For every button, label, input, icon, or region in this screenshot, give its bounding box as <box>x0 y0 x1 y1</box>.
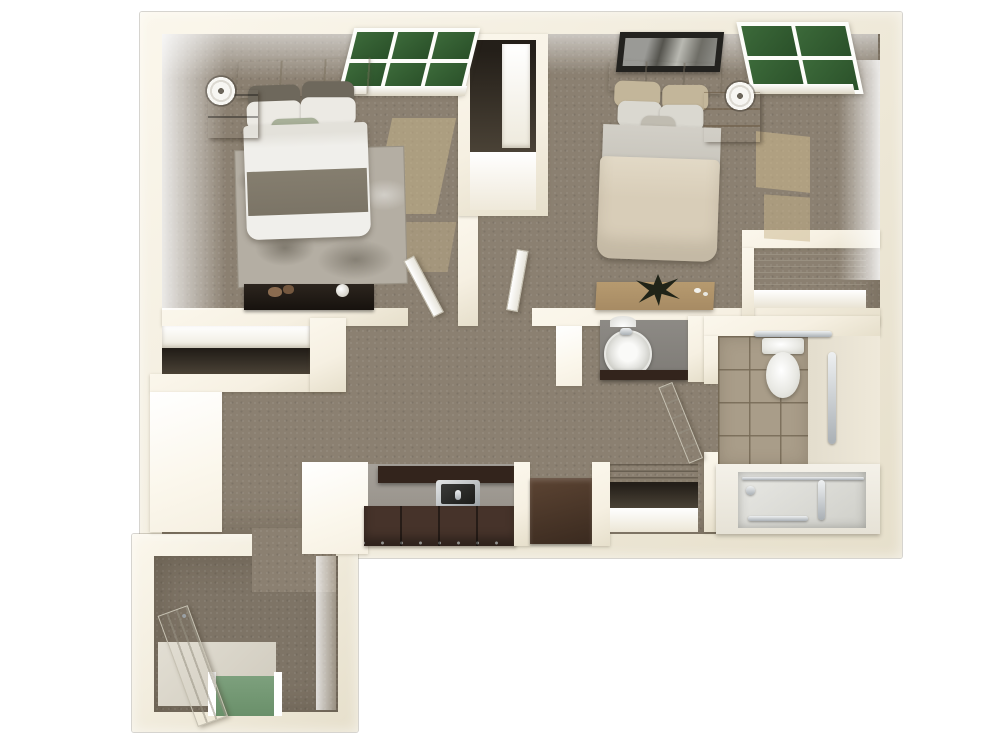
coat-closet-east-wall <box>310 318 346 392</box>
kitchen-lower-cabinets <box>364 506 516 546</box>
linen-closet-interior <box>610 482 698 508</box>
bed2-duvet <box>597 156 720 262</box>
bedroom1-table-lamp <box>204 74 238 108</box>
bedroom2-window-sill <box>745 84 855 94</box>
window-pane <box>350 32 393 59</box>
dresser-decor-sphere <box>318 286 334 302</box>
front-door-jamb <box>274 672 282 716</box>
bedroom2-sunlight-patch-2 <box>764 194 810 241</box>
bedroom2-closet-west-wall <box>742 248 754 326</box>
linen-closet-wire-shelf <box>610 464 698 482</box>
toilet-bowl <box>766 352 800 398</box>
window-pane <box>741 26 797 56</box>
window-pane <box>432 32 475 59</box>
linen-closet-floor <box>610 508 698 532</box>
desk-decor <box>694 288 701 293</box>
vanity-faucet <box>620 328 632 335</box>
window-pane <box>795 26 851 56</box>
bathroom-floor-light <box>808 336 880 466</box>
kitchen-peninsula-wall <box>302 462 368 554</box>
between-doors-wall-stub <box>458 216 478 326</box>
kitchen-faucet <box>455 490 461 500</box>
shower-door-handle <box>818 480 825 520</box>
bedroom2-table-lamp <box>722 78 758 114</box>
bedroom2-bed <box>593 60 726 262</box>
center-closet-lower <box>470 152 536 210</box>
vanity-east-wall <box>688 316 704 382</box>
tub-towel-bar <box>748 516 808 521</box>
kitchen-east-wall <box>592 462 610 546</box>
bedroom1-bed <box>237 58 375 240</box>
kitchen-sink <box>436 480 480 508</box>
grab-bar-vertical <box>828 352 836 444</box>
front-door-knob <box>182 613 187 618</box>
bedroom2-closet-front <box>754 290 866 308</box>
bathroom-tile-floor <box>718 336 808 466</box>
entry-east-wall-face <box>316 556 336 710</box>
vanity-wall-light <box>610 316 636 327</box>
hallway-west-wall <box>150 392 222 532</box>
bathroom-west-wall-upper <box>704 336 718 384</box>
center-closet-shelf <box>502 44 530 148</box>
bedroom1-south-wall <box>162 308 408 326</box>
bedroom2-sunlight-patch <box>756 131 810 193</box>
vanity-west-wall <box>556 326 582 386</box>
coat-closet-interior <box>162 348 310 374</box>
refrigerator <box>530 478 592 544</box>
bathroom-towel-bar <box>754 331 832 337</box>
shower-glass-track <box>742 477 864 480</box>
window-pane <box>391 32 434 59</box>
desk-decor <box>703 292 708 296</box>
floor-plan-stage <box>0 0 1000 750</box>
kitchen-divider-wall <box>514 462 530 546</box>
shower-head <box>746 486 755 495</box>
bed1-duvet-band <box>247 168 368 216</box>
vanity-drawer-front <box>600 370 688 380</box>
dresser-decor-sphere <box>336 284 349 297</box>
bedroom1-dresser <box>244 284 374 310</box>
coat-closet-shelf <box>162 326 310 348</box>
dresser-decor-stone <box>268 287 282 297</box>
dresser-decor-stone <box>283 285 294 294</box>
